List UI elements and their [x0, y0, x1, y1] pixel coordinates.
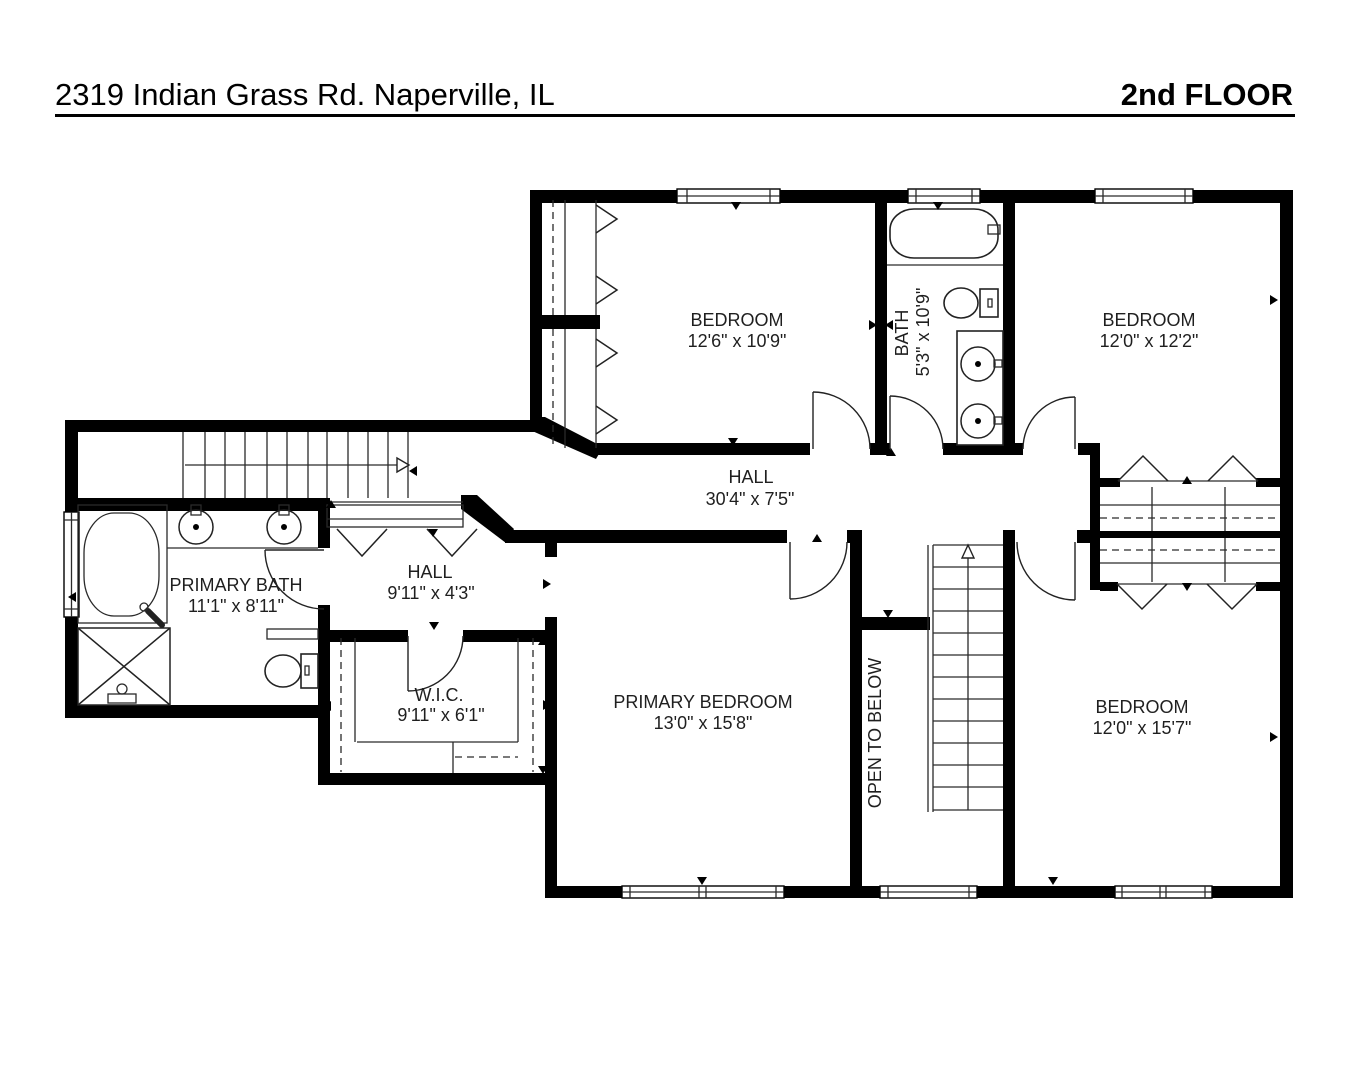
shower-icon	[78, 628, 170, 705]
walls-layer	[65, 190, 1293, 898]
floorplan-svg: 2319 Indian Grass Rd. Naperville, IL 2nd…	[0, 0, 1350, 1080]
toilet-icon	[265, 654, 318, 688]
stair-direction-arrow	[397, 458, 409, 472]
room-label-primary-bedroom: PRIMARY BEDROOM	[613, 692, 792, 712]
window	[908, 189, 980, 203]
floor-label: 2nd FLOOR	[1121, 77, 1293, 112]
header: 2319 Indian Grass Rd. Naperville, IL 2nd…	[55, 77, 1295, 117]
bathtub-icon	[890, 209, 998, 258]
window	[880, 886, 977, 898]
room-label-hall-main: HALL	[728, 467, 773, 487]
room-dims-primary-bath: 11'1" x 8'11"	[188, 596, 284, 616]
room-dims-wic: 9'11" x 6'1"	[397, 705, 484, 725]
room-dims-hall-main: 30'4" x 7'5"	[706, 489, 795, 509]
window	[1095, 189, 1193, 203]
window	[64, 512, 79, 617]
closet-linen	[327, 502, 477, 556]
windows-layer	[64, 189, 1212, 898]
room-label-bedroom-bottom-right: BEDROOM	[1095, 697, 1188, 717]
room-label-bath: BATH	[892, 310, 912, 357]
door-bath	[890, 396, 943, 449]
door-bedroom-right	[1023, 397, 1075, 449]
vanity-double-sink-icon	[167, 505, 318, 548]
room-label-bedroom-right: BEDROOM	[1102, 310, 1195, 330]
room-label-hall-small: HALL	[407, 562, 452, 582]
stair-direction-arrow	[962, 545, 974, 558]
room-dims-primary-bedroom: 13'0" x 15'8"	[654, 713, 753, 733]
closet-bedroom-bottom-right	[1100, 538, 1280, 609]
window	[1115, 886, 1212, 898]
toilet-icon	[944, 288, 998, 318]
header-rule	[55, 114, 1295, 117]
floorplan-page: 2319 Indian Grass Rd. Naperville, IL 2nd…	[0, 0, 1350, 1080]
shelf-icon	[267, 629, 318, 639]
address-title: 2319 Indian Grass Rd. Naperville, IL	[55, 77, 555, 112]
bifold-door	[1118, 456, 1258, 481]
window	[622, 886, 784, 898]
room-dims-bedroom-right: 12'0" x 12'2"	[1100, 331, 1199, 351]
stairs-upper	[183, 432, 409, 498]
room-label-primary-bath: PRIMARY BATH	[169, 575, 302, 595]
door-wic	[408, 636, 463, 691]
room-dims-bedroom-top: 12'6" x 10'9"	[688, 331, 787, 351]
room-dims-bedroom-bottom-right: 12'0" x 15'7"	[1093, 718, 1192, 738]
closet-bedroom-right	[1100, 456, 1280, 531]
door-primary-bedroom	[790, 542, 847, 599]
vanity-double-sink-icon	[957, 331, 1003, 445]
window	[677, 189, 780, 203]
room-dims-bath: 5'3" x 10'9"	[913, 288, 933, 377]
room-label-bedroom-top: BEDROOM	[690, 310, 783, 330]
door-bedroom-bottom-right	[1017, 542, 1075, 600]
room-label-wic: W.I.C.	[415, 685, 464, 705]
room-label-open-to-below: OPEN TO BELOW	[865, 658, 885, 808]
stairs-lower	[928, 545, 1003, 812]
bathtub-icon	[78, 505, 167, 625]
room-dims-hall-small: 9'11" x 4'3"	[387, 583, 474, 603]
bifold-door	[337, 529, 477, 556]
door-bedroom-top	[813, 392, 870, 449]
